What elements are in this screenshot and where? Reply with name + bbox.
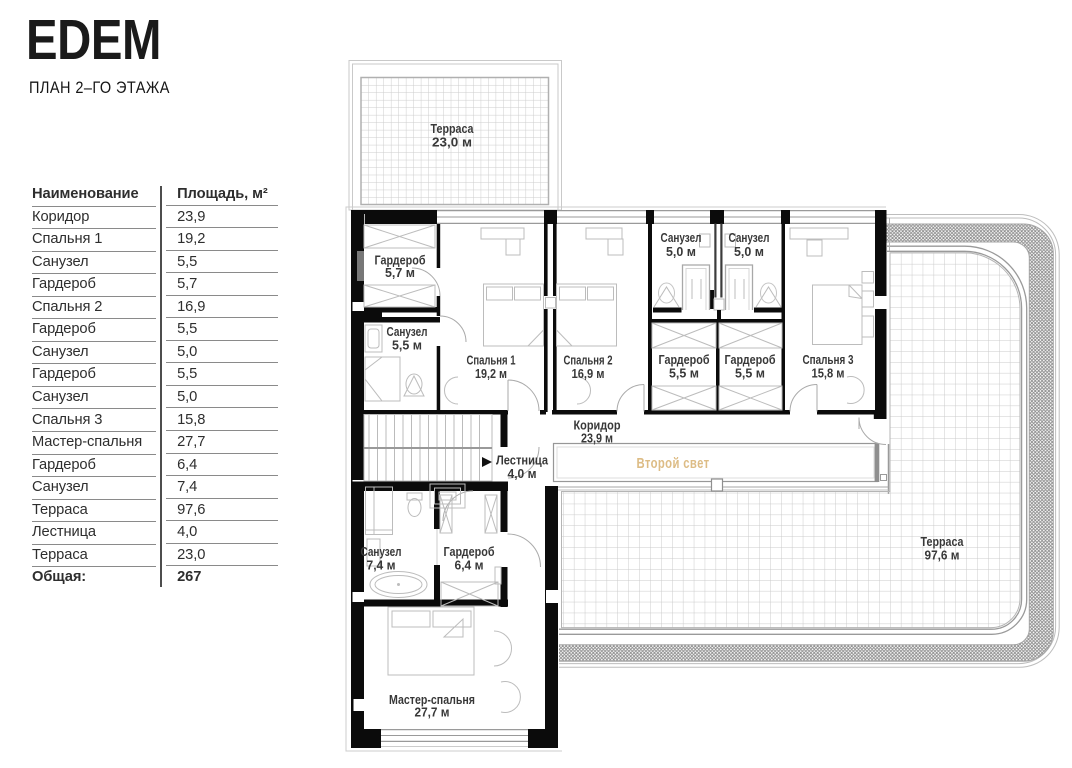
svg-text:23,9 м: 23,9 м (581, 431, 613, 446)
svg-text:5,5 м: 5,5 м (669, 366, 699, 381)
svg-text:Санузел: Санузел (729, 230, 770, 245)
svg-text:27,7 м: 27,7 м (415, 705, 450, 720)
svg-text:Санузел: Санузел (661, 230, 702, 245)
svg-text:Второй свет: Второй свет (637, 455, 710, 472)
svg-text:19,2 м: 19,2 м (475, 366, 507, 381)
svg-text:16,9 м: 16,9 м (572, 366, 605, 381)
svg-text:5,0 м: 5,0 м (666, 244, 696, 259)
svg-text:7,4 м: 7,4 м (367, 558, 396, 573)
svg-text:97,6 м: 97,6 м (925, 548, 960, 563)
svg-text:5,7 м: 5,7 м (385, 265, 415, 280)
svg-text:5,5 м: 5,5 м (392, 338, 422, 353)
svg-text:6,4 м: 6,4 м (455, 558, 484, 573)
svg-text:5,0 м: 5,0 м (734, 244, 764, 259)
svg-text:4,0 м: 4,0 м (508, 466, 537, 481)
svg-text:23,0 м: 23,0 м (432, 135, 472, 150)
svg-text:15,8 м: 15,8 м (812, 366, 845, 381)
svg-text:5,5 м: 5,5 м (735, 366, 765, 381)
